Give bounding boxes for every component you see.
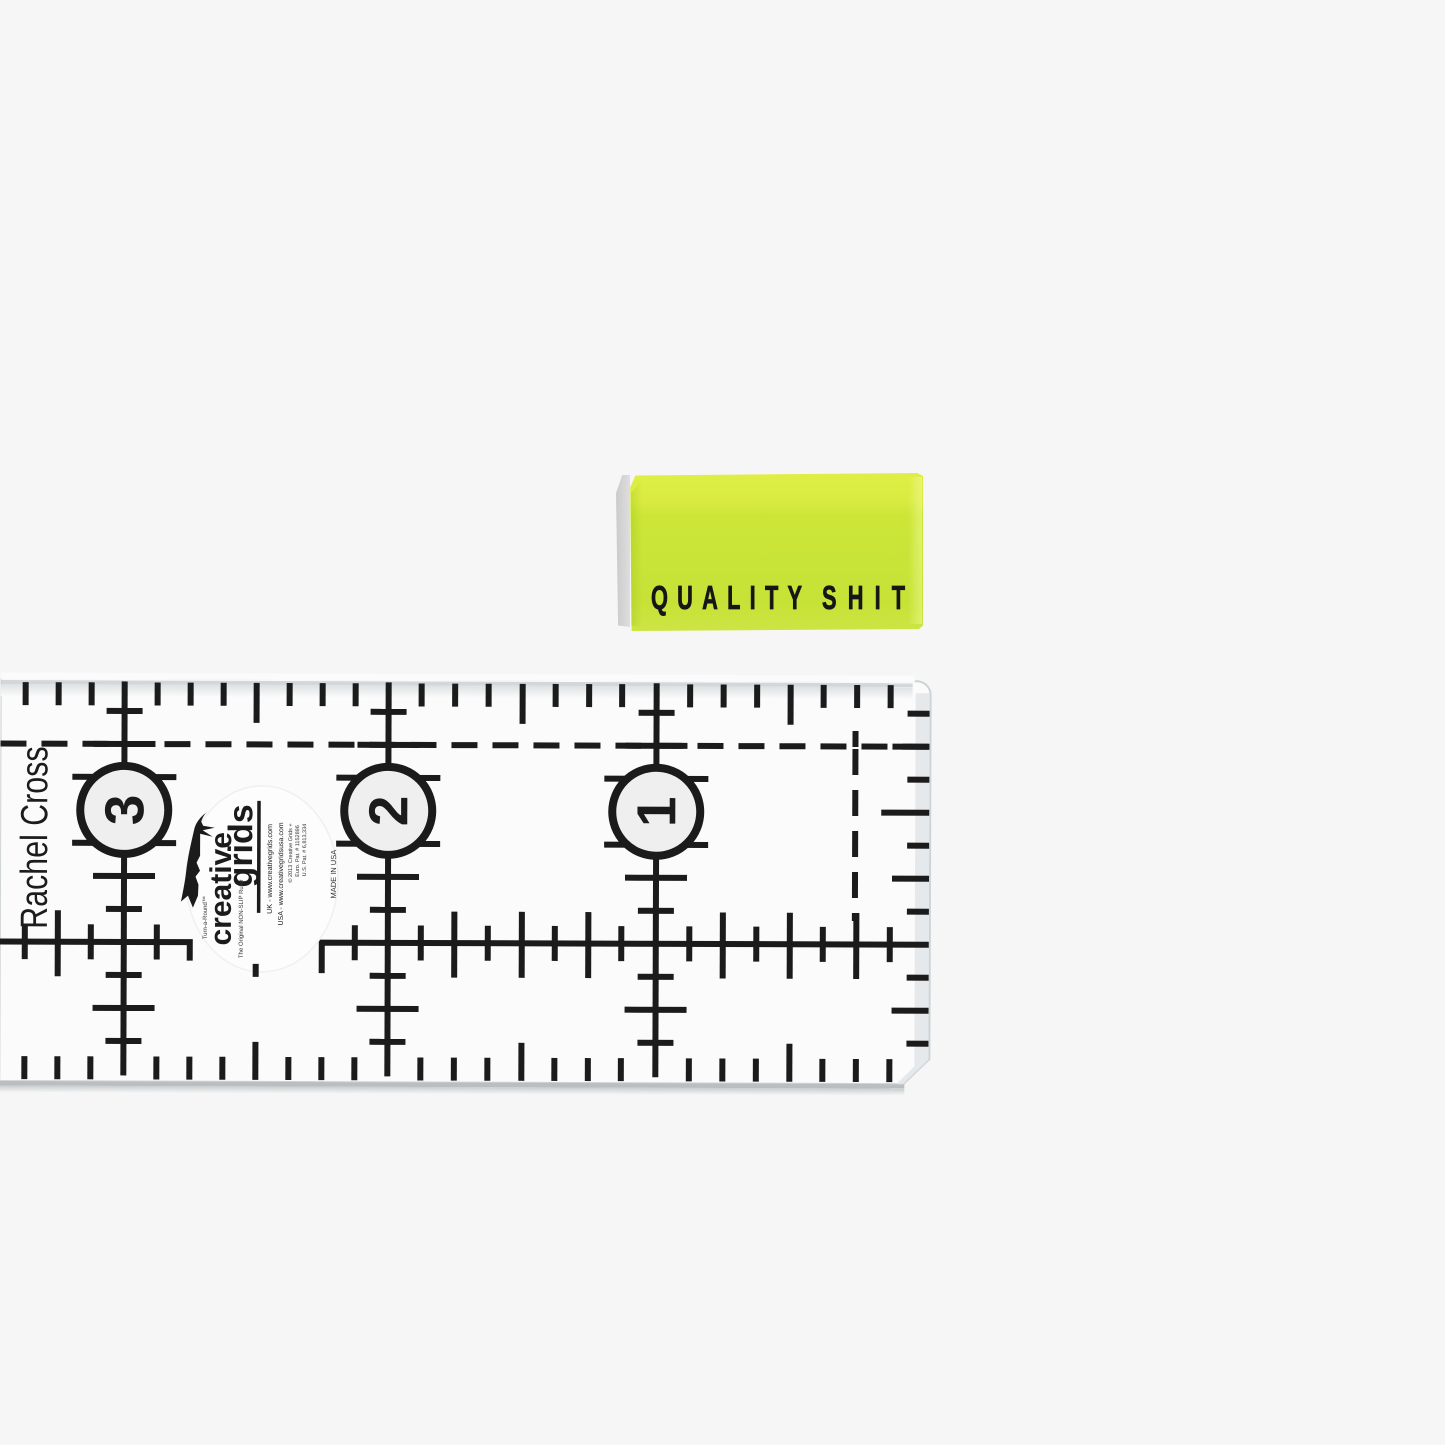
- svg-text:3: 3: [93, 795, 155, 826]
- svg-text:U.S. Pat. # 6,813,334: U.S. Pat. # 6,813,334: [302, 824, 308, 877]
- svg-text:Rachel Cross: Rachel Cross: [14, 746, 57, 929]
- svg-text:grids: grids: [222, 804, 260, 887]
- svg-text:Turn-a-Round™: Turn-a-Round™: [202, 896, 209, 939]
- svg-text:The Original NON-SLIP Ruler: The Original NON-SLIP Ruler: [239, 880, 245, 959]
- svg-text:1: 1: [625, 796, 687, 827]
- svg-text:2: 2: [357, 795, 419, 826]
- svg-text:Euro. Pat. # 1152896: Euro. Pat. # 1152896: [295, 825, 301, 877]
- svg-text:UK - www.creativegrids.com: UK - www.creativegrids.com: [265, 824, 274, 914]
- svg-text:© 2013 Creative Grids +: © 2013 Creative Grids +: [287, 823, 294, 882]
- svg-text:USA - www.creativegridsusa.com: USA - www.creativegridsusa.com: [278, 822, 285, 925]
- svg-text:MADE IN USA: MADE IN USA: [329, 850, 338, 899]
